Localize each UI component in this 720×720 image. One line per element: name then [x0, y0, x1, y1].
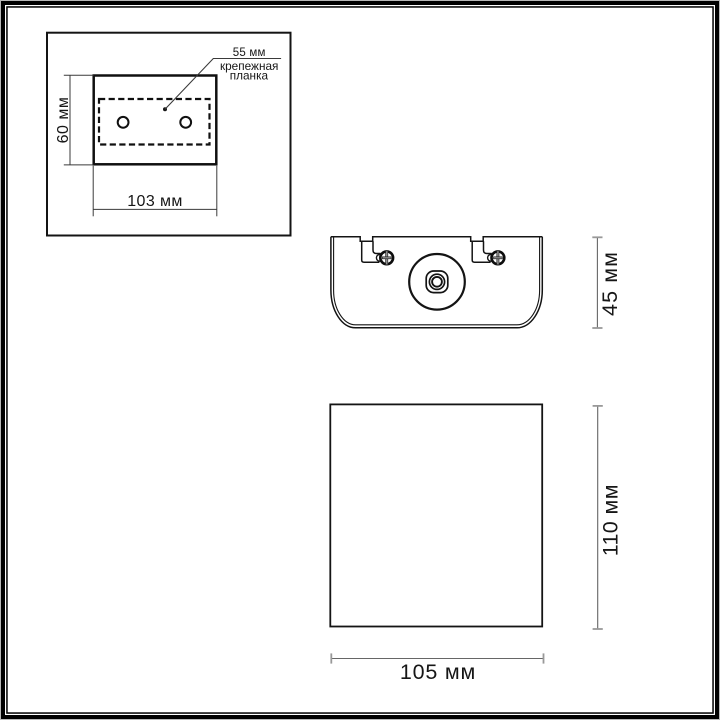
svg-text:планка: планка: [230, 68, 269, 82]
svg-text:110 мм: 110 мм: [599, 484, 623, 556]
svg-text:45 мм: 45 мм: [598, 251, 622, 316]
svg-text:105 мм: 105 мм: [400, 660, 476, 684]
svg-text:60 мм: 60 мм: [55, 97, 72, 144]
svg-text:103 мм: 103 мм: [127, 193, 183, 210]
svg-text:55 мм: 55 мм: [233, 47, 266, 59]
